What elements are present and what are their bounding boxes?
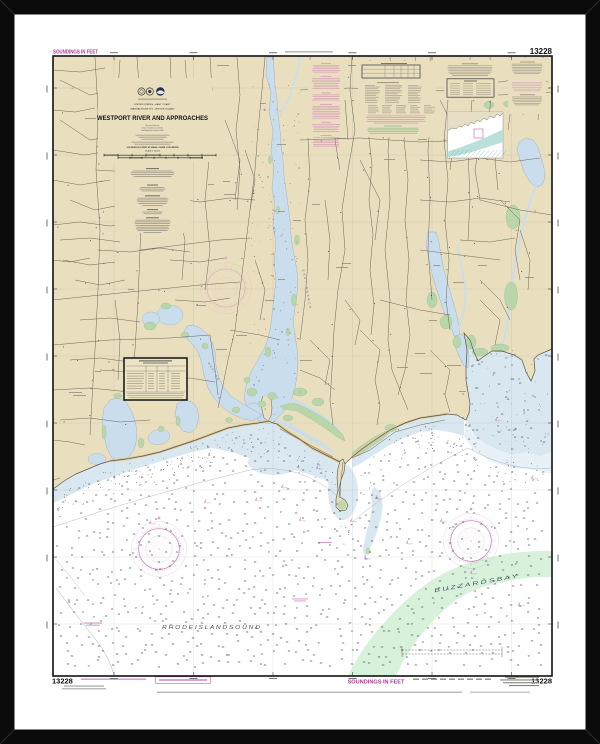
svg-text:SOUNDINGS IN FEET: SOUNDINGS IN FEET: [53, 50, 98, 56]
svg-text:13228: 13228: [530, 47, 553, 56]
svg-text:UNITED STATES - EAST COAST: UNITED STATES - EAST COAST: [135, 103, 172, 106]
svg-text:13228: 13228: [531, 677, 552, 686]
svg-text:MASSACHUSETTS - RHODE ISLAND: MASSACHUSETTS - RHODE ISLAND: [131, 108, 175, 111]
svg-text:WESTPORT RIVER AND APPROACHES: WESTPORT RIVER AND APPROACHES: [97, 115, 208, 122]
svg-text:R H O D E I S L A N D S O U: R H O D E I S L A N D S O U N D: [162, 625, 260, 631]
svg-text:SOUNDINGS IN FEET: SOUNDINGS IN FEET: [348, 680, 405, 686]
svg-text:13228: 13228: [52, 677, 73, 686]
svg-text:SCALE 1:20,000: SCALE 1:20,000: [145, 149, 161, 152]
svg-text:SOUNDINGS IN FEET AT MEAN LOWE: SOUNDINGS IN FEET AT MEAN LOWER LOW WATE…: [127, 146, 180, 149]
